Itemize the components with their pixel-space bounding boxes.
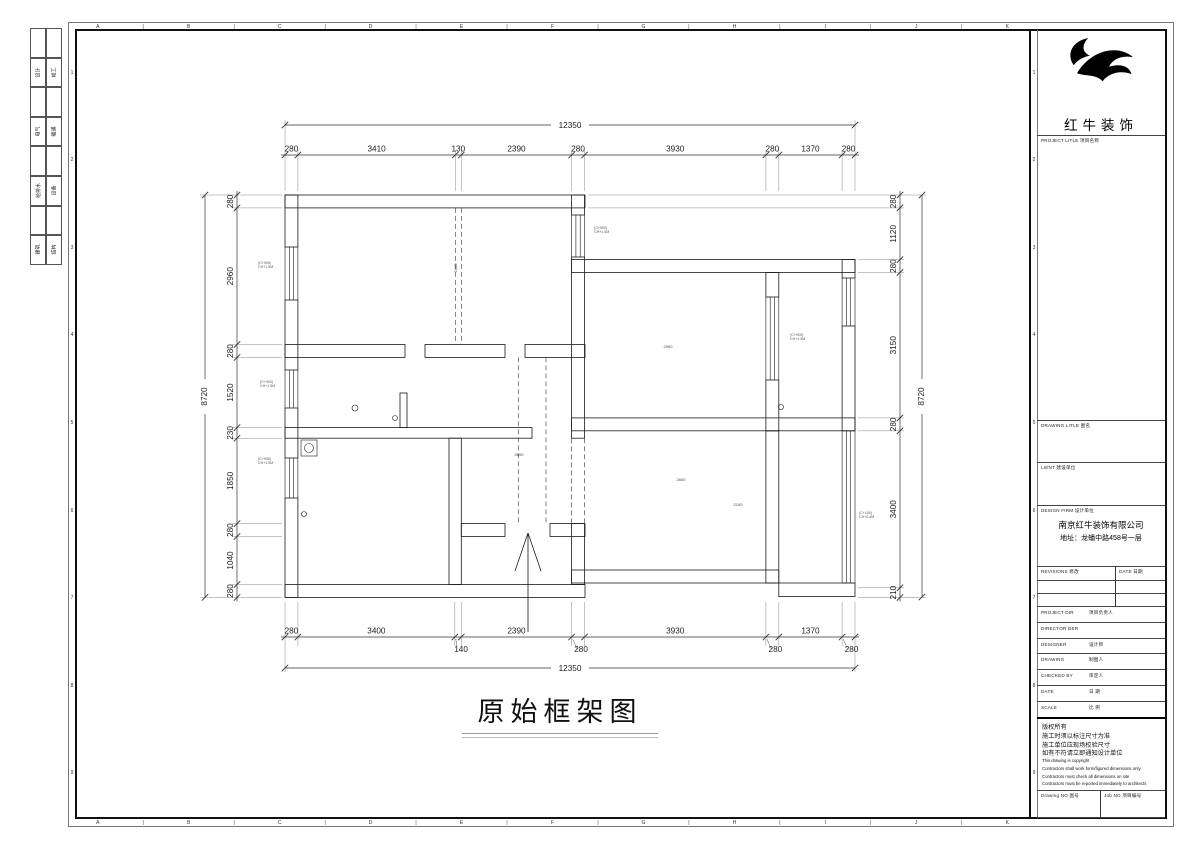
- grid-separator: |: [302, 819, 347, 827]
- design-firm-name: 南京红牛装饰有限公司: [1037, 519, 1165, 531]
- discipline-cell: 设计: [30, 58, 46, 88]
- svg-text:2960: 2960: [226, 267, 235, 286]
- svg-text:2600: 2600: [677, 477, 687, 482]
- outer-frame-right: [1173, 22, 1174, 827]
- grid-letter: B: [166, 23, 211, 31]
- svg-text:8720: 8720: [917, 387, 926, 406]
- window-hatches: [285, 215, 855, 498]
- grid-letter: H: [712, 819, 757, 827]
- svg-text:3930: 3930: [666, 627, 685, 636]
- tb-line: [1037, 566, 1165, 567]
- svg-text:1370: 1370: [801, 145, 820, 154]
- svg-text:280: 280: [889, 259, 898, 273]
- staff-row-line: [1037, 622, 1165, 623]
- tb-line: [1037, 817, 1165, 818]
- staff-label-en: PROJECT DIR: [1041, 610, 1074, 615]
- svg-text:280: 280: [285, 627, 299, 636]
- grid-number: 9: [69, 770, 76, 776]
- grid-letter: I: [803, 23, 848, 31]
- svg-text:280: 280: [889, 194, 898, 208]
- dimension-lines: 2803410130239028039302801370280123502803…: [200, 120, 926, 673]
- grid-letter: K: [985, 819, 1030, 827]
- grid-letter: J: [894, 819, 939, 827]
- grid-separator: |: [120, 23, 165, 31]
- svg-text:(C+900)CH+1.5M: (C+900)CH+1.5M: [258, 261, 273, 269]
- grid-separator: |: [939, 819, 984, 827]
- svg-text:8720: 8720: [200, 387, 209, 406]
- plan-annotations: 29003600260021002440(C+900)CH+1.5M(C+900…: [258, 226, 874, 519]
- discipline-cell: 电气: [30, 117, 46, 147]
- discipline-cell: 暖通: [46, 117, 62, 147]
- staff-label-zh: 日 期: [1089, 689, 1100, 695]
- discipline-label: 设计: [34, 67, 41, 77]
- drawing-sheet: 2803410130239028039302801370280123502803…: [0, 0, 1200, 844]
- svg-text:(C+900)CH+1.5M: (C+900)CH+1.5M: [594, 226, 609, 234]
- svg-text:210: 210: [889, 585, 898, 599]
- discipline-cell: [46, 28, 62, 58]
- svg-text:1370: 1370: [801, 627, 820, 636]
- discipline-cell: [30, 146, 46, 176]
- staff-label-zh: 审定人: [1089, 673, 1103, 679]
- job-no-label: Job NO 项目编号: [1104, 793, 1141, 799]
- grid-separator: |: [848, 819, 893, 827]
- grid-letter: D: [348, 819, 393, 827]
- tb-line: [1037, 462, 1165, 463]
- staff-label-zh: 项目负责人: [1089, 610, 1113, 616]
- copyright-note-en: Contractors must check all dimensions on…: [1042, 774, 1129, 779]
- svg-text:3150: 3150: [889, 336, 898, 355]
- svg-text:12350: 12350: [559, 121, 582, 130]
- staff-row-line: [1037, 669, 1165, 670]
- discipline-label: 建筑: [34, 245, 41, 255]
- discipline-cell: [46, 87, 62, 117]
- grid-letter: A: [75, 23, 120, 31]
- svg-text:(C+100)CH+2.4M: (C+100)CH+2.4M: [859, 511, 874, 519]
- grid-separator: |: [666, 23, 711, 31]
- grid-separator: |: [484, 819, 529, 827]
- copyright-note-zh: 版权所有: [1042, 722, 1067, 731]
- svg-text:3400: 3400: [889, 500, 898, 519]
- grid-letter: B: [166, 819, 211, 827]
- project-title-label: PROJECT LITLE 项目名称: [1041, 138, 1099, 144]
- drawing-title: 原始框架图: [440, 690, 680, 729]
- discipline-cell: 建筑: [30, 235, 46, 265]
- svg-text:1520: 1520: [226, 383, 235, 402]
- svg-text:140: 140: [454, 645, 468, 654]
- staff-row-line: [1037, 685, 1165, 686]
- grid-letter: A: [75, 819, 120, 827]
- svg-text:3400: 3400: [367, 627, 386, 636]
- grid-letter: H: [712, 23, 757, 31]
- svg-text:2390: 2390: [507, 145, 526, 154]
- svg-text:2100: 2100: [734, 502, 744, 507]
- discipline-label: 设备: [50, 186, 57, 196]
- grid-number: 1: [69, 70, 76, 76]
- tb-line: [1037, 135, 1165, 136]
- svg-text:1120: 1120: [889, 225, 898, 243]
- svg-text:280: 280: [571, 145, 585, 154]
- svg-text:3600: 3600: [515, 452, 525, 457]
- svg-text:280: 280: [845, 645, 859, 654]
- discipline-label: 竣工: [50, 67, 57, 77]
- grid-separator: |: [939, 23, 984, 31]
- tb-line: [1037, 580, 1165, 581]
- svg-text:280: 280: [769, 645, 783, 654]
- discipline-cell: 设备: [46, 176, 62, 206]
- copyright-note-en: This drawing is copyright: [1042, 758, 1089, 763]
- drawing-title-label: DRAWING LITLE 图名: [1041, 423, 1090, 429]
- grid-number: 8: [69, 683, 76, 689]
- svg-text:2390: 2390: [507, 627, 526, 636]
- staff-label-en: CHECKED BY: [1041, 673, 1073, 678]
- copyright-note-zh: 如有不符请立即通知设计单位: [1042, 748, 1122, 757]
- svg-text:230: 230: [226, 426, 235, 440]
- svg-text:280: 280: [285, 145, 299, 154]
- grid-separator: |: [211, 23, 256, 31]
- dashed-walls: [455, 208, 584, 524]
- svg-text:280: 280: [574, 645, 588, 654]
- staff-row-line: [1037, 606, 1165, 607]
- revisions-divider: [1115, 566, 1116, 606]
- copyright-note-en: Contractors must be reported immediately…: [1042, 781, 1146, 786]
- discipline-cell: [30, 206, 46, 236]
- no-box-divider: [1100, 790, 1101, 817]
- grid-letter: D: [348, 23, 393, 31]
- grid-separator: |: [211, 819, 256, 827]
- staff-label-en: SCALE: [1041, 705, 1057, 710]
- svg-text:(C+900)CH+1.5M: (C+900)CH+1.5M: [790, 333, 805, 341]
- copyright-note-en: Contractors shall work form/figured dime…: [1042, 766, 1141, 771]
- grid-letter: G: [621, 819, 666, 827]
- staff-label-en: DESIGNER: [1041, 642, 1067, 647]
- copyright-note-zh: 施工时须以标注尺寸为准: [1042, 731, 1110, 740]
- tb-line: [1037, 593, 1165, 594]
- grid-separator: |: [120, 819, 165, 827]
- walls: [285, 195, 855, 597]
- svg-text:2900: 2900: [664, 344, 674, 349]
- discipline-cell: [30, 28, 46, 58]
- discipline-cell: 竣工: [46, 58, 62, 88]
- revisions-label: REVISIONS 修改: [1041, 569, 1079, 575]
- grid-separator: |: [757, 819, 802, 827]
- grid-number: 3: [69, 245, 76, 251]
- design-firm-address: 地址：龙蟠中路458号一层: [1037, 533, 1165, 543]
- grid-letter: J: [894, 23, 939, 31]
- staff-row-line: [1037, 701, 1165, 702]
- svg-text:280: 280: [766, 145, 780, 154]
- discipline-label: 电气: [34, 127, 41, 137]
- fixtures: [301, 405, 784, 517]
- tb-line: [1037, 505, 1165, 506]
- grid-separator: |: [757, 23, 802, 31]
- brand-name: 红牛装饰: [1037, 114, 1165, 134]
- grid-letter: G: [621, 23, 666, 31]
- date-col-label: DATE 日期: [1119, 569, 1143, 575]
- grid-letter: F: [530, 23, 575, 31]
- discipline-cell: [46, 206, 62, 236]
- staff-label-zh: 比 例: [1089, 705, 1100, 711]
- grid-separator: |: [575, 819, 620, 827]
- svg-text:280: 280: [889, 417, 898, 431]
- grid-letter: K: [985, 23, 1030, 31]
- svg-text:2440: 2440: [453, 263, 458, 273]
- svg-text:1850: 1850: [226, 471, 235, 490]
- grid-letter: C: [257, 23, 302, 31]
- svg-text:12350: 12350: [559, 664, 582, 673]
- svg-text:280: 280: [226, 344, 235, 358]
- grid-number: 6: [69, 508, 76, 514]
- grid-number: 7: [69, 595, 76, 601]
- balcony-glazing: [842, 431, 855, 583]
- design-firm-label: DESIGN FIRM 设计单位: [1041, 508, 1094, 514]
- staff-row-line: [1037, 638, 1165, 639]
- staff-label-en: DRAWING: [1041, 657, 1064, 662]
- notes-separator: [1037, 717, 1165, 719]
- grid-separator: |: [302, 23, 347, 31]
- grid-separator: |: [393, 23, 438, 31]
- drawing-title-underline: [462, 733, 658, 738]
- discipline-cell: [30, 87, 46, 117]
- discipline-label: 给排水: [35, 183, 42, 198]
- svg-text:1040: 1040: [226, 551, 235, 570]
- grid-number: 4: [69, 332, 76, 338]
- grid-letter: C: [257, 819, 302, 827]
- discipline-cell: [46, 146, 62, 176]
- staff-label-zh: 设计师: [1089, 642, 1103, 648]
- staff-label-en: DIRECTOR DER: [1041, 626, 1078, 631]
- staff-label-en: DATE: [1041, 689, 1054, 694]
- svg-text:280: 280: [842, 145, 856, 154]
- bull-logo-icon: [1061, 34, 1141, 90]
- svg-text:(C+900)CH+1.5M: (C+900)CH+1.5M: [258, 457, 273, 465]
- tb-line: [1037, 420, 1165, 421]
- grid-separator: |: [848, 23, 893, 31]
- title-block: 红牛装饰 PROJECT LITLE 项目名称 DRAWING LITLE 图名…: [1037, 30, 1165, 818]
- staff-label-zh: 制图人: [1089, 657, 1103, 663]
- entry-arrow: [515, 533, 541, 632]
- drawing-no-label: Drawing NO 图号: [1041, 793, 1079, 799]
- client-label: LIENT 建设单位: [1041, 465, 1076, 471]
- border-right: [1165, 29, 1167, 818]
- grid-separator: |: [484, 23, 529, 31]
- svg-text:3930: 3930: [666, 145, 685, 154]
- grid-number: 2: [69, 157, 76, 163]
- grid-letter: F: [530, 819, 575, 827]
- copyright-note-zh: 施工单位应现场校验尺寸: [1042, 740, 1110, 749]
- discipline-cell: 给排水: [30, 176, 46, 206]
- grid-separator: |: [575, 23, 620, 31]
- staff-row-line: [1037, 653, 1165, 654]
- tb-line: [1037, 790, 1165, 791]
- brand-logo: [1061, 34, 1141, 90]
- svg-text:130: 130: [451, 145, 465, 154]
- svg-text:280: 280: [226, 194, 235, 208]
- grid-letter: I: [803, 819, 848, 827]
- discipline-label: 暖通: [50, 127, 57, 137]
- grid-separator: |: [393, 819, 438, 827]
- svg-text:(C+900)CH+1.5M: (C+900)CH+1.5M: [260, 380, 275, 388]
- svg-text:280: 280: [226, 584, 235, 598]
- svg-text:280: 280: [226, 523, 235, 537]
- grid-number: 5: [69, 420, 76, 426]
- grid-letter: E: [439, 23, 484, 31]
- discipline-cell: 结构: [46, 235, 62, 265]
- grid-letter: E: [439, 819, 484, 827]
- grid-separator: |: [666, 819, 711, 827]
- svg-text:3410: 3410: [368, 145, 387, 154]
- discipline-label: 结构: [50, 245, 57, 255]
